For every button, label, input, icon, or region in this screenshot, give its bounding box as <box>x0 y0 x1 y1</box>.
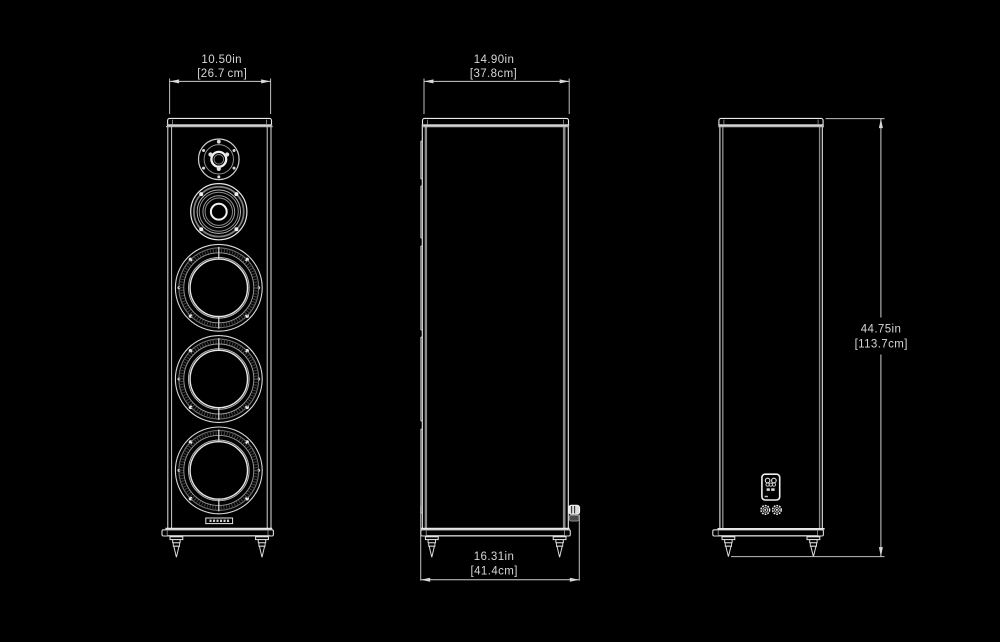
svg-text:44.75in: 44.75in <box>861 324 902 336</box>
svg-text:[37.8cm]: [37.8cm] <box>470 68 517 80</box>
svg-text:[41.4cm]: [41.4cm] <box>471 565 518 577</box>
svg-text:[113.7cm]: [113.7cm] <box>855 338 908 350</box>
svg-text:10.50in: 10.50in <box>201 54 242 66</box>
svg-text:[26.7 cm]: [26.7 cm] <box>197 68 247 80</box>
svg-text:14.90in: 14.90in <box>474 54 515 66</box>
svg-text:16.31in: 16.31in <box>474 551 515 563</box>
